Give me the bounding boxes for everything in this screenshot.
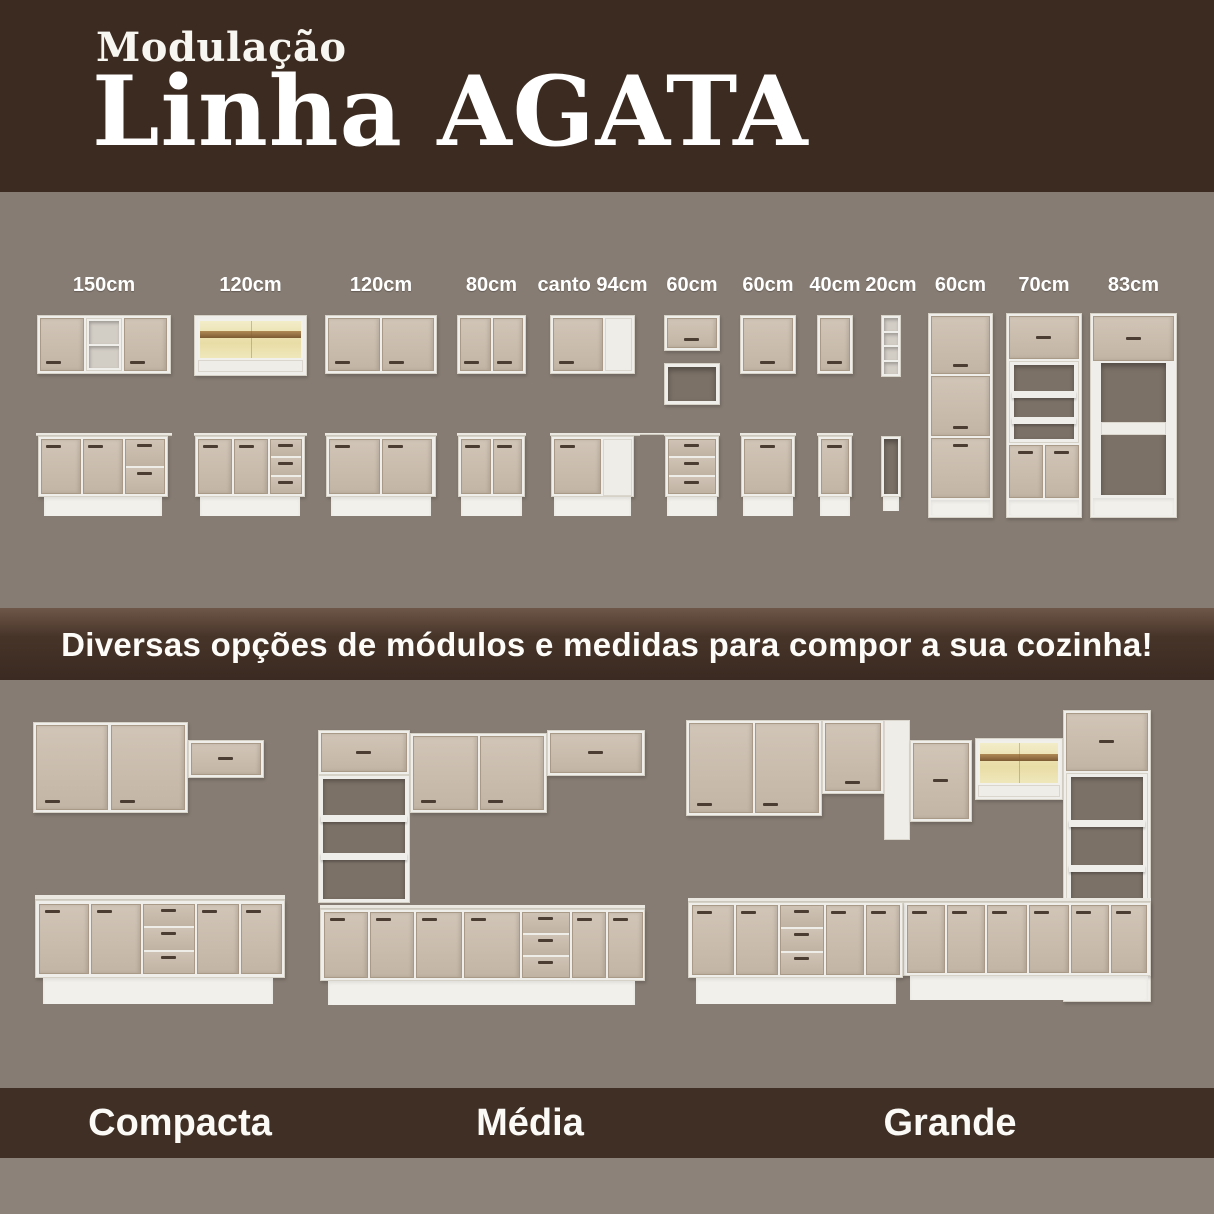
plinth-base — [331, 497, 431, 516]
tagline-band: Diversas opções de módulos e medidas par… — [0, 608, 1214, 680]
open-shelf-frame — [318, 775, 410, 903]
door-handle — [421, 800, 436, 803]
door-handle — [246, 910, 261, 913]
plinth-base — [696, 978, 896, 1004]
modules-row: 150cm120cm120cm80cmcanto 94cm60cm60cm40c… — [0, 192, 1214, 608]
cabinet-door — [692, 905, 734, 975]
cabinet-door — [1029, 905, 1069, 973]
plinth-base — [44, 497, 162, 516]
module-10-60cm: 60cm — [928, 192, 993, 608]
door-handle — [577, 918, 592, 921]
cabinet-door — [866, 905, 900, 975]
kitchen-name-media: Média — [430, 1088, 630, 1158]
kitchen-name-grande: Grande — [850, 1088, 1050, 1158]
cabinet-door — [826, 905, 864, 975]
drawer — [523, 913, 569, 935]
cabinet-door — [931, 376, 990, 436]
door-handle — [760, 445, 775, 448]
kitchen-layouts-section — [0, 680, 1214, 1088]
cabinet-door — [416, 912, 462, 978]
module-6-60cm: 60cm — [664, 192, 720, 608]
module-size-label: 70cm — [1018, 274, 1069, 297]
glass-door — [978, 741, 1060, 785]
door-handle — [763, 803, 778, 806]
cabinet-door — [744, 439, 792, 494]
shelf-opening — [89, 321, 119, 344]
cabinet-door — [755, 723, 819, 813]
cabinet-door — [191, 743, 261, 775]
kitchen-name-compacta: Compacta — [80, 1088, 280, 1158]
cabinet-door — [572, 912, 606, 978]
plinth-base — [1009, 500, 1079, 515]
module-5-canto-94cm: canto 94cm — [550, 192, 635, 608]
bottom-strip — [0, 1158, 1214, 1214]
drawer-stack — [522, 912, 570, 978]
shelf-opening — [884, 333, 898, 346]
cabinet-door — [987, 905, 1027, 973]
drawer — [271, 440, 301, 458]
shelf-board — [1012, 417, 1076, 424]
cabinet-door — [1009, 445, 1043, 498]
cabinet-door — [234, 439, 268, 494]
door-handle — [1018, 451, 1033, 454]
door-handle — [697, 911, 712, 914]
cabinet-door — [554, 439, 601, 494]
glass-door — [198, 319, 303, 360]
cabinet-door — [461, 439, 491, 494]
module-size-label: 120cm — [350, 274, 412, 297]
door-handle — [388, 445, 403, 448]
cabinet-door — [608, 912, 643, 978]
tagline-text: Diversas opções de módulos e medidas par… — [0, 608, 1214, 680]
open-shelf-frame — [1066, 773, 1148, 903]
cabinet-door — [324, 912, 368, 978]
cabinet-door — [1111, 905, 1147, 973]
drawer-stack — [143, 904, 195, 974]
door-handle — [1076, 911, 1091, 914]
drawer — [781, 929, 823, 952]
door-handle — [46, 361, 61, 364]
kitchen-scene-3 — [678, 680, 1152, 1010]
door-handle — [912, 911, 927, 914]
module-size-label: 60cm — [935, 274, 986, 297]
drawer-handle — [684, 444, 699, 447]
drawer — [781, 953, 823, 974]
plinth-base — [554, 497, 631, 516]
drawer-handle — [278, 444, 293, 447]
door-handle — [1126, 337, 1141, 340]
door-handle — [933, 779, 948, 782]
shelf-board — [1069, 820, 1145, 827]
door-handle — [952, 911, 967, 914]
door-handle — [488, 800, 503, 803]
door-handle — [45, 910, 60, 913]
door-handle — [130, 361, 145, 364]
door-handle — [497, 445, 512, 448]
door-handle — [471, 918, 486, 921]
door-handle — [335, 445, 350, 448]
cabinet-door — [480, 736, 544, 810]
door-handle — [464, 361, 479, 364]
white-panel — [1101, 422, 1166, 435]
door-handle — [760, 361, 775, 364]
cabinet-door — [41, 439, 81, 494]
door-handle — [741, 911, 756, 914]
plinth-base — [43, 978, 273, 1004]
page-title: Linha AGATA — [92, 64, 809, 160]
drawer-handle — [161, 909, 176, 912]
drawer-handle — [538, 961, 553, 964]
door-handle — [120, 800, 135, 803]
module-size-label: 20cm — [865, 274, 916, 297]
cabinet-door — [743, 318, 793, 371]
door-handle — [953, 426, 968, 429]
cabinet-door — [83, 439, 123, 494]
shelf-board — [1012, 391, 1076, 398]
door-handle — [389, 361, 404, 364]
glass-divider — [1019, 743, 1020, 783]
plinth-base — [743, 497, 793, 516]
drawer-handle — [278, 481, 293, 484]
door-handle — [97, 910, 112, 913]
glass-divider — [251, 321, 252, 358]
cabinet-door — [931, 316, 990, 374]
module-1-150cm: 150cm — [36, 192, 172, 608]
cabinet-door — [40, 318, 84, 371]
module-size-label: 60cm — [666, 274, 717, 297]
door-handle — [203, 445, 218, 448]
door-handle — [684, 338, 699, 341]
door-handle — [465, 445, 480, 448]
door-handle — [613, 918, 628, 921]
door-handle — [1116, 911, 1131, 914]
module-2-120cm: 120cm — [194, 192, 307, 608]
door-handle — [218, 757, 233, 760]
cabinet-door — [493, 318, 523, 371]
cabinet-door — [1093, 316, 1174, 361]
door-handle — [953, 364, 968, 367]
drawer-stack — [668, 439, 716, 494]
cabinet-door — [39, 904, 89, 974]
cabinet-door — [370, 912, 414, 978]
plinth-base — [820, 497, 850, 516]
kitchen-scene-1 — [33, 680, 285, 1010]
door-handle — [1034, 911, 1049, 914]
cabinet-door — [197, 904, 239, 974]
drawer — [126, 440, 164, 468]
open-shelf-frame — [1009, 361, 1079, 443]
door-handle — [831, 911, 846, 914]
cabinet-door — [198, 439, 232, 494]
drawer — [669, 440, 715, 458]
drawer — [669, 477, 715, 493]
cabinet-door — [493, 439, 522, 494]
door-handle — [88, 445, 103, 448]
drawer-handle — [137, 444, 152, 447]
plinth-base — [931, 500, 990, 515]
drawer-handle — [684, 481, 699, 484]
drawer — [523, 957, 569, 977]
cabinet-door — [825, 723, 881, 791]
plinth-base — [1093, 498, 1174, 515]
cabinet-door — [689, 723, 753, 813]
drawer-stack — [125, 439, 165, 494]
drawer — [781, 906, 823, 929]
cabinet-door — [821, 439, 849, 494]
door-handle — [697, 803, 712, 806]
door-handle — [356, 751, 371, 754]
drawer-handle — [684, 462, 699, 465]
cabinet-door — [36, 725, 108, 810]
module-size-label: 150cm — [73, 274, 135, 297]
module-size-label: 83cm — [1108, 274, 1159, 297]
module-size-label: 120cm — [219, 274, 281, 297]
cabinet-door — [460, 318, 491, 371]
white-panel — [198, 360, 303, 372]
plinth-base — [910, 976, 1148, 1000]
cabinet-door — [907, 905, 945, 973]
cabinet-door — [913, 743, 969, 819]
module-8-40cm: 40cm — [817, 192, 853, 608]
door-handle — [1099, 740, 1114, 743]
drawer-handle — [161, 932, 176, 935]
door-handle — [871, 911, 886, 914]
door-handle — [239, 445, 254, 448]
shelf-board — [321, 815, 407, 822]
door-handle — [992, 911, 1007, 914]
cabinet-door — [736, 905, 778, 975]
door-handle — [560, 445, 575, 448]
cabinet-door — [413, 736, 478, 810]
module-size-label: canto 94cm — [537, 274, 647, 297]
shelf-opening — [884, 318, 898, 331]
drawer-handle — [794, 910, 809, 913]
cabinet-door — [553, 318, 603, 371]
open-shelf-interior — [1014, 365, 1074, 439]
door-handle — [588, 751, 603, 754]
door-handle — [45, 800, 60, 803]
plinth-base — [328, 981, 635, 1005]
door-handle — [376, 918, 391, 921]
module-size-label: 40cm — [809, 274, 860, 297]
door-handle — [46, 445, 61, 448]
drawer-handle — [538, 939, 553, 942]
shelf-opening — [884, 347, 898, 360]
drawer — [523, 935, 569, 957]
open-shelf-interior — [1071, 777, 1143, 899]
cabinet-door — [550, 733, 642, 773]
door-handle — [202, 910, 217, 913]
drawer — [669, 458, 715, 476]
cabinet-door — [241, 904, 282, 974]
drawer-handle — [137, 472, 152, 475]
drawer-handle — [161, 956, 176, 959]
drawer — [144, 928, 194, 951]
cabinet-door — [667, 318, 717, 348]
door-handle — [1054, 451, 1069, 454]
module-size-label: 80cm — [466, 274, 517, 297]
kitchen-names-band: Compacta Média Grande — [0, 1088, 1214, 1158]
cabinet-door — [329, 439, 380, 494]
plinth-base — [200, 497, 300, 516]
module-7-60cm: 60cm — [740, 192, 796, 608]
drawer-stack — [780, 905, 824, 975]
cabinet-door — [124, 318, 167, 371]
cabinet-door — [1066, 713, 1148, 771]
kitchen-scene-2 — [318, 680, 645, 1010]
drawer-handle — [794, 933, 809, 936]
cabinet-door — [820, 318, 850, 371]
door-handle — [1036, 336, 1051, 339]
cabinet-door — [1071, 905, 1109, 973]
shelf-opening — [89, 346, 119, 369]
white-panel — [603, 439, 632, 496]
cabinet-door — [321, 733, 407, 772]
door-handle — [422, 918, 437, 921]
module-11-70cm: 70cm — [1006, 192, 1082, 608]
white-panel — [605, 318, 632, 371]
drawer — [126, 468, 164, 494]
open-niche — [884, 439, 898, 494]
modules-section: 150cm120cm120cm80cmcanto 94cm60cm60cm40c… — [0, 192, 1214, 608]
shelf-board — [321, 853, 407, 860]
door-handle — [845, 781, 860, 784]
white-panel — [978, 785, 1060, 797]
drawer — [144, 905, 194, 928]
module-4-80cm: 80cm — [457, 192, 526, 608]
drawer — [271, 458, 301, 476]
kitchens-row — [0, 680, 1214, 1088]
door-handle — [335, 361, 350, 364]
cabinet-door — [931, 438, 990, 498]
cabinet-door — [464, 912, 520, 978]
door-handle — [330, 918, 345, 921]
module-9-20cm: 20cm — [881, 192, 901, 608]
drawer-handle — [278, 462, 293, 465]
drawer — [144, 952, 194, 973]
cabinet-door — [382, 318, 434, 371]
plinth-base — [667, 497, 717, 516]
shelf-opening — [884, 362, 898, 375]
plinth-base — [883, 497, 899, 511]
cabinet-door — [1045, 445, 1079, 498]
cabinet-door — [91, 904, 141, 974]
plinth-base — [461, 497, 522, 516]
white-panel — [884, 720, 910, 840]
cabinet-door — [1009, 316, 1079, 359]
door-handle — [827, 445, 842, 448]
open-shelf-stack — [86, 318, 122, 371]
drawer-handle — [794, 957, 809, 960]
header-banner: Modulação Linha AGATA — [0, 0, 1214, 192]
door-handle — [827, 361, 842, 364]
module-3-120cm: 120cm — [325, 192, 437, 608]
open-niche — [668, 367, 716, 401]
module-size-label: 60cm — [742, 274, 793, 297]
cabinet-door — [947, 905, 985, 973]
door-handle — [559, 361, 574, 364]
cabinet-door — [328, 318, 380, 371]
cabinet-door — [111, 725, 185, 810]
open-shelf-stack — [881, 315, 901, 377]
drawer — [271, 477, 301, 493]
drawer-handle — [538, 917, 553, 920]
module-12-83cm: 83cm — [1090, 192, 1177, 608]
shelf-board — [1069, 865, 1145, 872]
door-handle — [953, 444, 968, 447]
cabinet-door — [382, 439, 432, 494]
door-handle — [497, 361, 512, 364]
drawer-stack — [270, 439, 302, 494]
open-shelf-interior — [323, 779, 405, 899]
